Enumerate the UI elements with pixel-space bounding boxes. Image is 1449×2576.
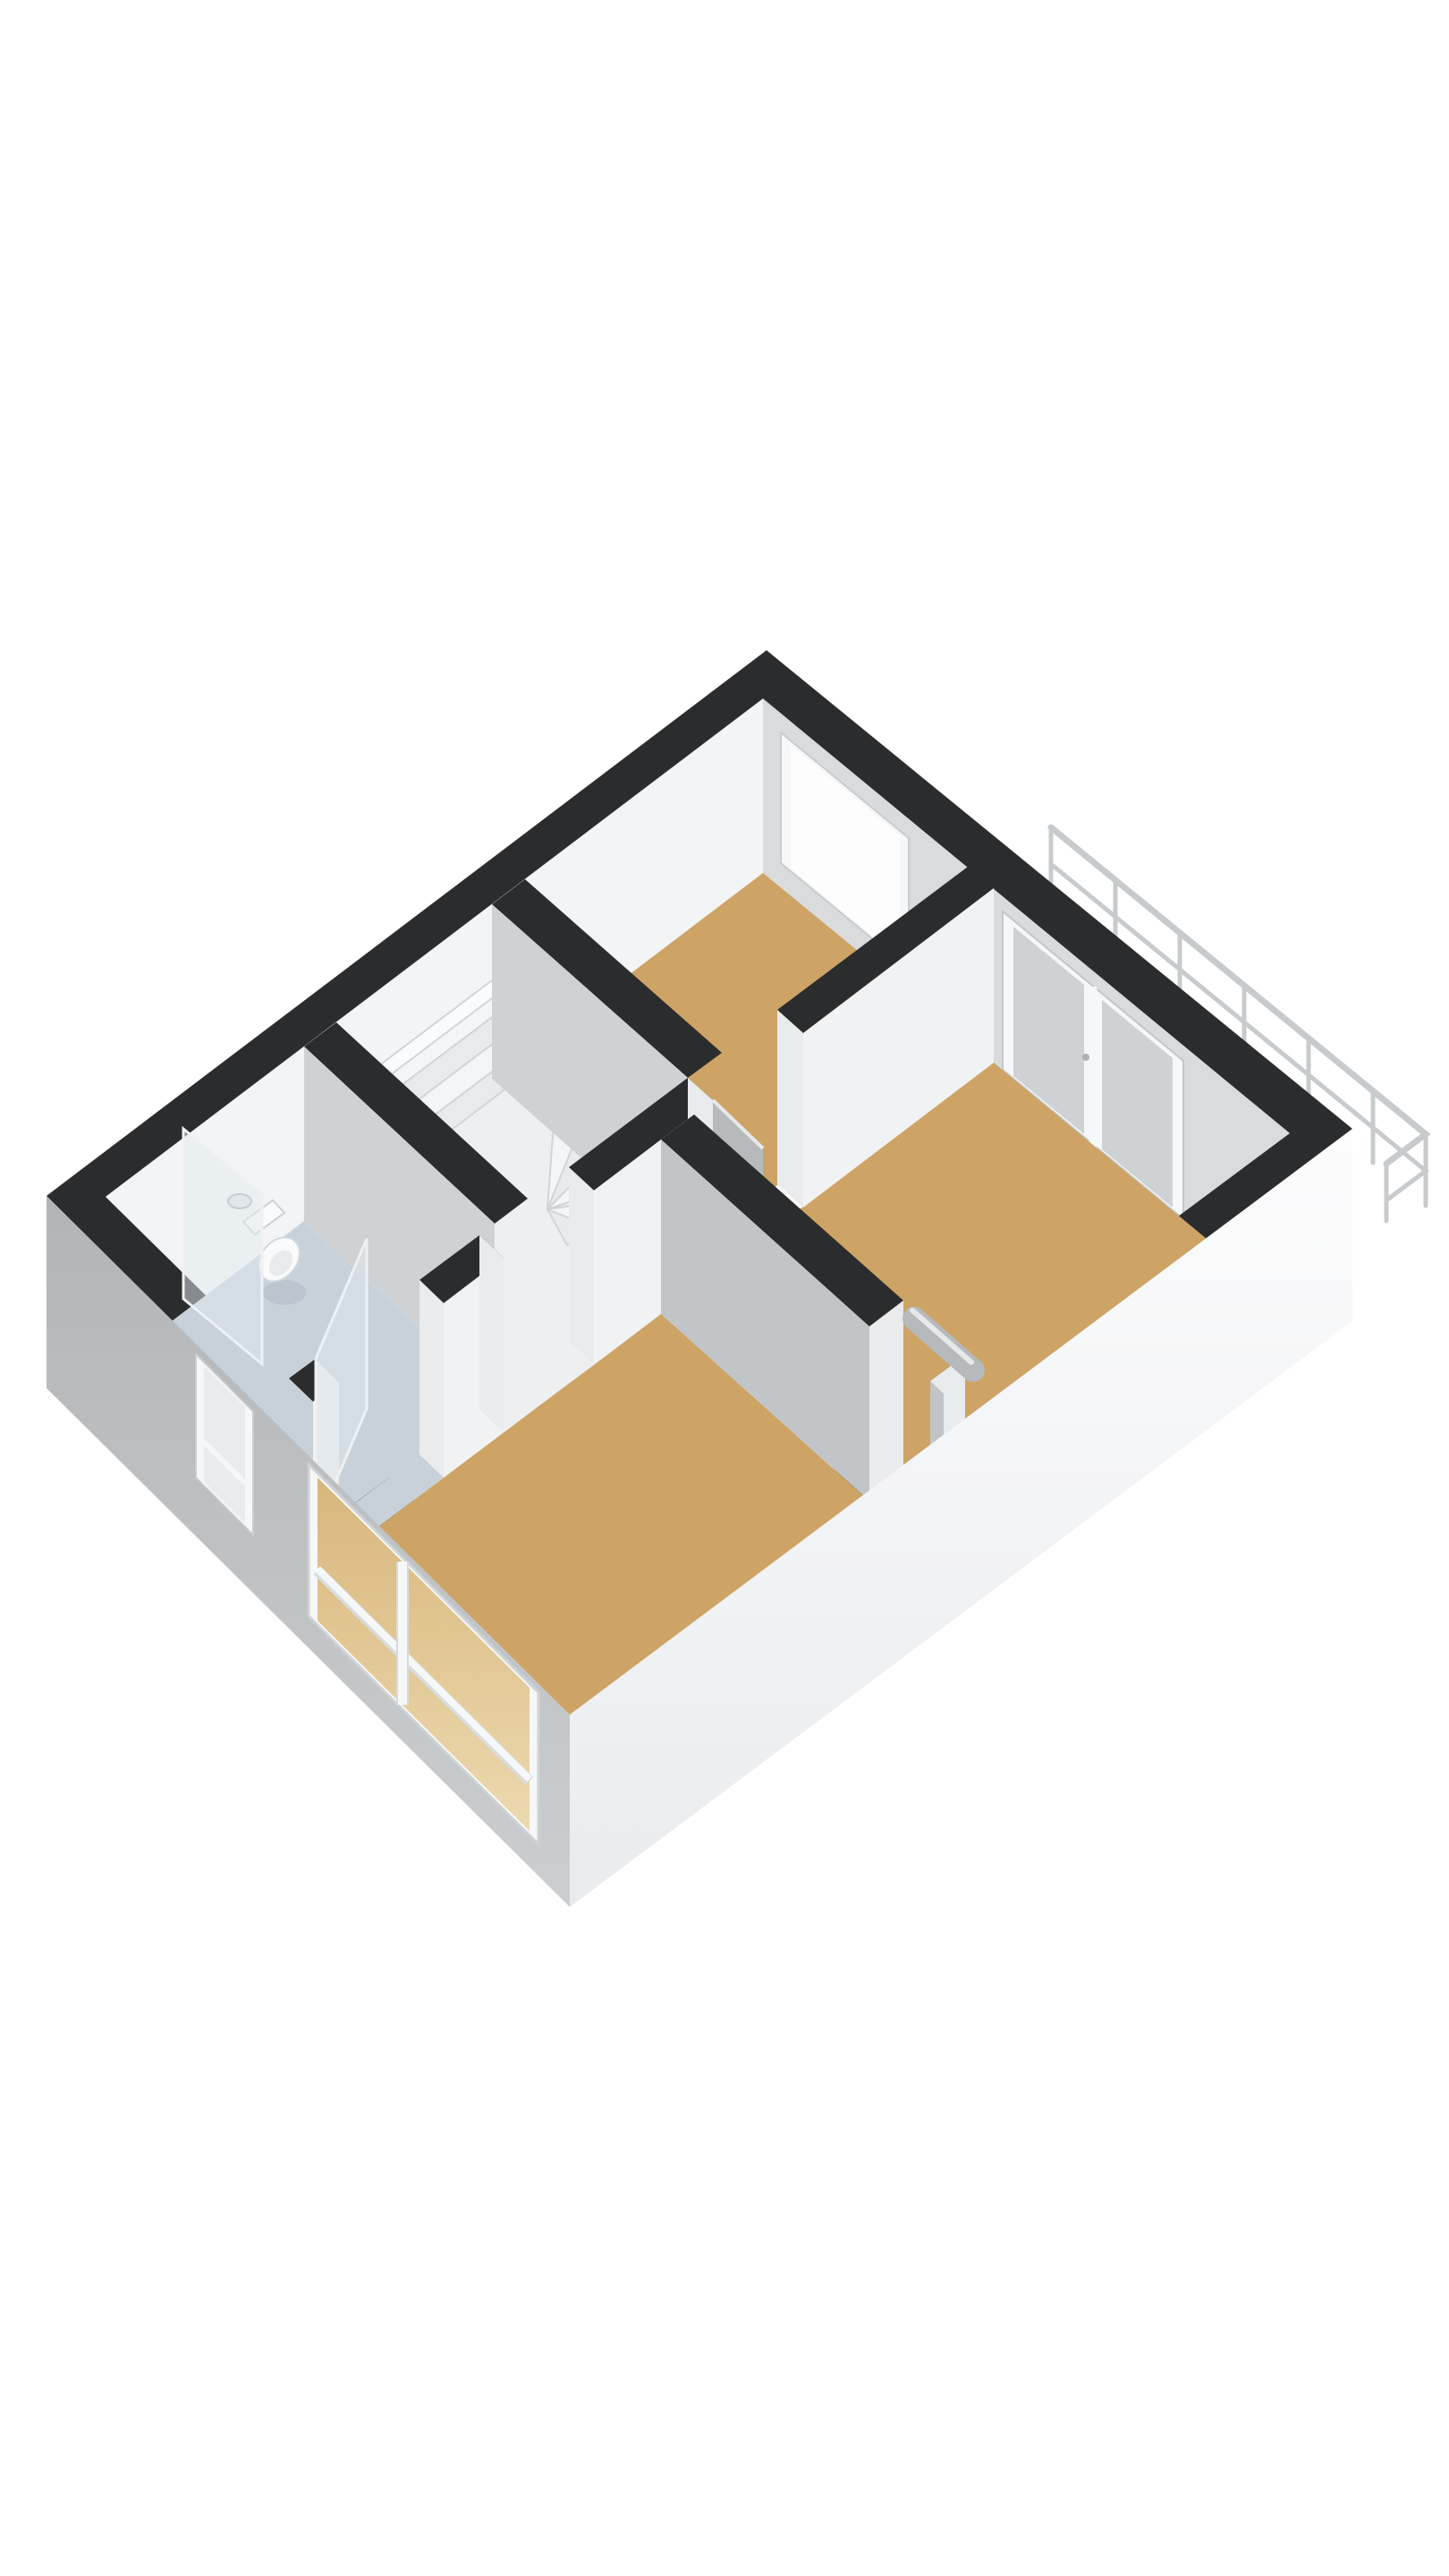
french-door-handle [1082,1054,1089,1061]
floorplan-3d-render [0,0,1449,2576]
door-jamb-cap [479,1235,504,1432]
floorplan-canvas [0,0,1449,2576]
door-jamb-cap [569,1167,594,1365]
door-jamb-cap [777,1010,803,1207]
door-jamb-cap [419,1280,444,1478]
toilet-shadow [263,1280,306,1305]
